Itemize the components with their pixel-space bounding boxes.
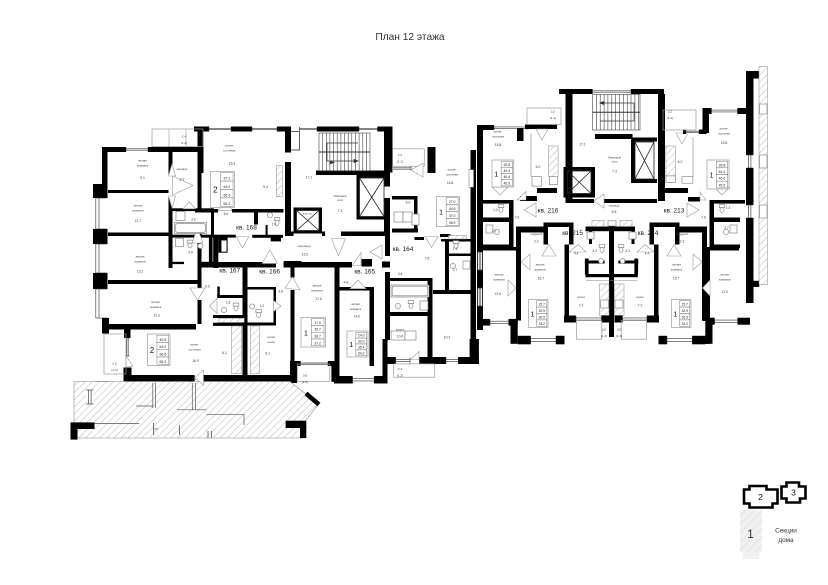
svg-text:7.8: 7.8 — [425, 257, 430, 261]
svg-text:46.6: 46.6 — [504, 175, 511, 179]
svg-text:15.8: 15.8 — [721, 141, 728, 145]
svg-text:8.8: 8.8 — [278, 290, 283, 294]
svg-text:комната: комната — [671, 268, 683, 272]
svg-text:15.2: 15.2 — [302, 253, 309, 257]
svg-text:кухня-: кухня- — [448, 168, 457, 172]
svg-text:44.4: 44.4 — [719, 170, 726, 174]
svg-text:36.5: 36.5 — [538, 315, 545, 319]
svg-text:кв. 166: кв. 166 — [259, 269, 280, 276]
svg-text:Лифт №1: Лифт №1 — [367, 176, 377, 179]
svg-text:65.2: 65.2 — [224, 202, 231, 206]
svg-text:кв. 214: кв. 214 — [638, 230, 659, 237]
svg-text:кухня-: кухня- — [225, 144, 234, 148]
svg-text:17.6: 17.6 — [314, 321, 321, 325]
svg-text:13.0: 13.0 — [721, 290, 728, 294]
svg-text:комната: комната — [137, 164, 149, 168]
svg-text:34.2: 34.2 — [538, 322, 545, 326]
svg-text:кухня: кухня — [267, 335, 275, 339]
svg-text:кухня: кухня — [396, 328, 404, 332]
svg-text:Лифтовый: Лифтовый — [334, 194, 347, 198]
svg-text:жилая: жилая — [136, 255, 145, 259]
svg-text:66.4: 66.4 — [224, 193, 231, 197]
svg-text:комната: комната — [719, 278, 731, 282]
svg-text:1.3: 1.3 — [453, 247, 458, 251]
svg-text:15.7: 15.7 — [538, 277, 545, 281]
svg-text:6.0: 6.0 — [536, 165, 541, 169]
svg-text:26.8: 26.8 — [504, 163, 511, 167]
svg-text:кухня: кухня — [636, 295, 644, 299]
svg-text:3.9: 3.9 — [191, 218, 196, 222]
svg-text:7.3: 7.3 — [612, 170, 617, 174]
svg-text:3.8: 3.8 — [188, 251, 193, 255]
svg-text:жилая: жилая — [536, 263, 545, 267]
svg-text:10.6: 10.6 — [397, 335, 404, 339]
svg-text:2.4: 2.4 — [398, 367, 403, 371]
svg-text:7.6: 7.6 — [701, 216, 706, 220]
svg-text:1: 1 — [304, 330, 308, 337]
svg-text:кв. 216: кв. 216 — [538, 208, 559, 215]
svg-text:Лифтовый: Лифтовый — [608, 156, 621, 160]
svg-text:Лифт №1: Лифт №1 — [639, 139, 649, 142]
svg-text:гостиная: гостиная — [492, 135, 505, 139]
svg-text:2.4: 2.4 — [182, 135, 187, 139]
svg-text:14.0: 14.0 — [354, 315, 361, 319]
svg-text:3.3: 3.3 — [625, 249, 630, 253]
svg-text:комната: комната — [311, 289, 323, 293]
svg-text:Лифт №2: Лифт №2 — [303, 213, 313, 216]
svg-text:комната: комната — [493, 278, 505, 282]
svg-text:1: 1 — [709, 173, 713, 180]
svg-text:жилая: жилая — [151, 300, 160, 304]
svg-text:9.6: 9.6 — [205, 285, 210, 289]
svg-text:кв. 164: кв. 164 — [393, 246, 414, 253]
svg-text:9.3: 9.3 — [180, 178, 185, 182]
svg-text:жилая: жилая — [351, 302, 360, 306]
svg-text:1: 1 — [349, 342, 353, 349]
svg-text:(1.5): (1.5) — [302, 380, 308, 384]
svg-text:26.8: 26.8 — [719, 163, 726, 167]
svg-text:3.8: 3.8 — [398, 272, 403, 276]
svg-text:7.6: 7.6 — [515, 216, 520, 220]
svg-text:17.6: 17.6 — [315, 297, 322, 301]
svg-text:коридор: коридор — [609, 204, 620, 208]
svg-text:27.0: 27.0 — [449, 200, 456, 204]
svg-text:гардероб: гардероб — [676, 232, 688, 236]
svg-text:гостиная: гостиная — [223, 149, 236, 153]
svg-text:кв. 213: кв. 213 — [664, 208, 685, 215]
svg-text:2.2: 2.2 — [668, 110, 673, 114]
svg-text:2: 2 — [758, 492, 763, 502]
svg-text:гардероб: гардероб — [530, 232, 542, 236]
svg-text:34.2: 34.2 — [358, 351, 365, 355]
svg-text:17.1: 17.1 — [579, 143, 586, 147]
svg-text:гостиная: гостиная — [446, 173, 459, 177]
svg-text:64.0: 64.0 — [159, 345, 166, 349]
svg-text:33.0: 33.0 — [358, 340, 365, 344]
svg-text:4.8: 4.8 — [344, 281, 349, 285]
svg-text:кв. 168: кв. 168 — [236, 225, 257, 232]
svg-text:13.2: 13.2 — [137, 270, 144, 274]
svg-text:6.0: 6.0 — [678, 160, 683, 164]
svg-text:комната: комната — [534, 268, 546, 272]
svg-text:2.6: 2.6 — [602, 328, 607, 332]
svg-text:17.1: 17.1 — [306, 176, 313, 180]
svg-text:4.4: 4.4 — [574, 252, 579, 256]
svg-text:Лифт №2: Лифт №2 — [572, 169, 582, 172]
svg-text:комната: комната — [132, 209, 144, 213]
svg-text:холл: холл — [337, 199, 343, 202]
svg-text:кухня-: кухня- — [190, 343, 199, 347]
svg-text:жилая: жилая — [672, 263, 681, 267]
svg-text:45.9: 45.9 — [449, 221, 456, 225]
svg-text:13.0: 13.0 — [494, 292, 501, 296]
svg-text:жилая: жилая — [495, 273, 504, 277]
svg-text:комната: комната — [134, 260, 146, 264]
svg-text:6.1: 6.1 — [222, 351, 227, 355]
svg-text:9.4: 9.4 — [263, 185, 268, 189]
svg-text:13.3: 13.3 — [153, 314, 160, 318]
svg-text:2.2: 2.2 — [551, 110, 556, 114]
svg-text:холл: холл — [612, 160, 618, 163]
svg-text:64.0: 64.0 — [224, 185, 231, 189]
svg-text:16.9: 16.9 — [192, 359, 199, 363]
svg-text:4.4: 4.4 — [645, 252, 650, 256]
svg-text:6.8: 6.8 — [612, 210, 617, 214]
svg-text:34.2: 34.2 — [681, 322, 688, 326]
svg-text:1: 1 — [439, 210, 443, 217]
svg-text:дома: дома — [778, 537, 794, 544]
svg-text:44.8: 44.8 — [449, 207, 456, 211]
svg-text:2.6: 2.6 — [112, 362, 117, 366]
svg-text:2.6: 2.6 — [617, 328, 622, 332]
svg-text:38.7: 38.7 — [314, 335, 321, 339]
svg-text:3.0: 3.0 — [303, 374, 308, 378]
svg-text:жилая: жилая — [138, 159, 147, 163]
svg-text:45.5: 45.5 — [719, 183, 726, 187]
svg-text:45.5: 45.5 — [504, 181, 511, 185]
svg-text:ниша: ниша — [267, 340, 275, 344]
svg-text:32.9: 32.9 — [681, 309, 688, 313]
svg-text:жилая: жилая — [313, 284, 322, 288]
svg-text:1.8: 1.8 — [272, 223, 277, 227]
svg-text:35.7: 35.7 — [314, 328, 321, 332]
svg-text:7.3: 7.3 — [338, 209, 343, 213]
svg-text:44.4: 44.4 — [504, 169, 511, 173]
svg-text:(1.3): (1.3) — [111, 368, 117, 372]
svg-text:15.7: 15.7 — [673, 277, 680, 281]
svg-text:Секции: Секции — [775, 528, 797, 535]
svg-text:10.2: 10.2 — [444, 336, 451, 340]
svg-text:9.1: 9.1 — [140, 176, 145, 180]
svg-text:37.2: 37.2 — [314, 341, 321, 345]
svg-text:66.6: 66.6 — [159, 353, 166, 357]
svg-text:2: 2 — [213, 186, 218, 195]
svg-text:14.0: 14.0 — [358, 334, 365, 338]
svg-text:(1.3): (1.3) — [616, 334, 622, 338]
svg-text:жилая: жилая — [720, 273, 729, 277]
svg-text:47.0: 47.0 — [449, 214, 456, 218]
svg-text:2: 2 — [150, 346, 155, 355]
svg-text:35.4: 35.4 — [358, 345, 365, 349]
svg-text:кухня-: кухня- — [720, 127, 729, 131]
svg-text:46.6: 46.6 — [719, 177, 726, 181]
svg-text:1: 1 — [530, 312, 534, 319]
svg-text:15.7: 15.7 — [681, 303, 688, 307]
svg-text:65.3: 65.3 — [159, 360, 166, 364]
svg-text:15.8: 15.8 — [495, 143, 502, 147]
svg-text:1: 1 — [747, 529, 753, 541]
svg-text:(1.1): (1.1) — [550, 116, 556, 120]
svg-text:36.5: 36.5 — [681, 315, 688, 319]
svg-text:План 12 этажа: План 12 этажа — [375, 32, 445, 43]
svg-text:корридор: корридор — [297, 244, 310, 248]
svg-text:6.1: 6.1 — [265, 352, 270, 356]
svg-text:6.0: 6.0 — [406, 201, 411, 205]
svg-text:кв. 215: кв. 215 — [562, 230, 583, 237]
svg-text:(1.2): (1.2) — [181, 141, 187, 145]
svg-text:1.3: 1.3 — [726, 206, 731, 210]
svg-text:(1.1): (1.1) — [397, 160, 403, 164]
svg-text:3.2: 3.2 — [260, 304, 265, 308]
svg-text:32.9: 32.9 — [538, 309, 545, 313]
svg-text:2.7: 2.7 — [724, 226, 729, 230]
svg-text:7.2: 7.2 — [579, 304, 584, 308]
svg-text:комната: комната — [150, 305, 162, 309]
svg-text:2.7: 2.7 — [453, 268, 458, 272]
svg-text:2.3: 2.3 — [534, 240, 539, 244]
svg-text:15.7: 15.7 — [538, 303, 545, 307]
svg-text:3: 3 — [791, 488, 796, 498]
svg-text:1: 1 — [494, 172, 498, 179]
svg-text:жилая: жилая — [134, 204, 143, 208]
svg-text:кухня-: кухня- — [494, 130, 503, 134]
svg-text:кв. 167: кв. 167 — [219, 268, 240, 275]
svg-text:(1.3): (1.3) — [601, 334, 607, 338]
svg-text:(1.1): (1.1) — [667, 116, 673, 120]
svg-text:кв. 165: кв. 165 — [354, 269, 375, 276]
svg-text:1.8: 1.8 — [226, 301, 231, 305]
svg-text:гостиная: гостиная — [718, 132, 731, 136]
svg-text:кухня: кухня — [577, 295, 585, 299]
svg-text:2.3: 2.3 — [680, 240, 685, 244]
svg-text:1.3: 1.3 — [493, 208, 498, 212]
svg-text:2.2: 2.2 — [398, 153, 403, 157]
svg-text:7.2: 7.2 — [638, 304, 643, 308]
svg-text:16.3: 16.3 — [229, 162, 236, 166]
svg-text:11.7: 11.7 — [135, 219, 141, 223]
svg-text:гостиная: гостиная — [188, 348, 201, 352]
svg-text:1: 1 — [673, 312, 677, 319]
svg-text:2.7: 2.7 — [492, 229, 497, 233]
svg-text:5.6: 5.6 — [224, 212, 229, 216]
svg-text:42.8: 42.8 — [159, 338, 166, 342]
svg-text:(1.2): (1.2) — [397, 373, 403, 377]
svg-text:3.3: 3.3 — [592, 249, 597, 253]
svg-text:16.6: 16.6 — [447, 181, 454, 185]
svg-text:комната: комната — [350, 307, 362, 311]
svg-text:37.1: 37.1 — [224, 177, 231, 181]
svg-text:коридор: коридор — [177, 167, 188, 171]
